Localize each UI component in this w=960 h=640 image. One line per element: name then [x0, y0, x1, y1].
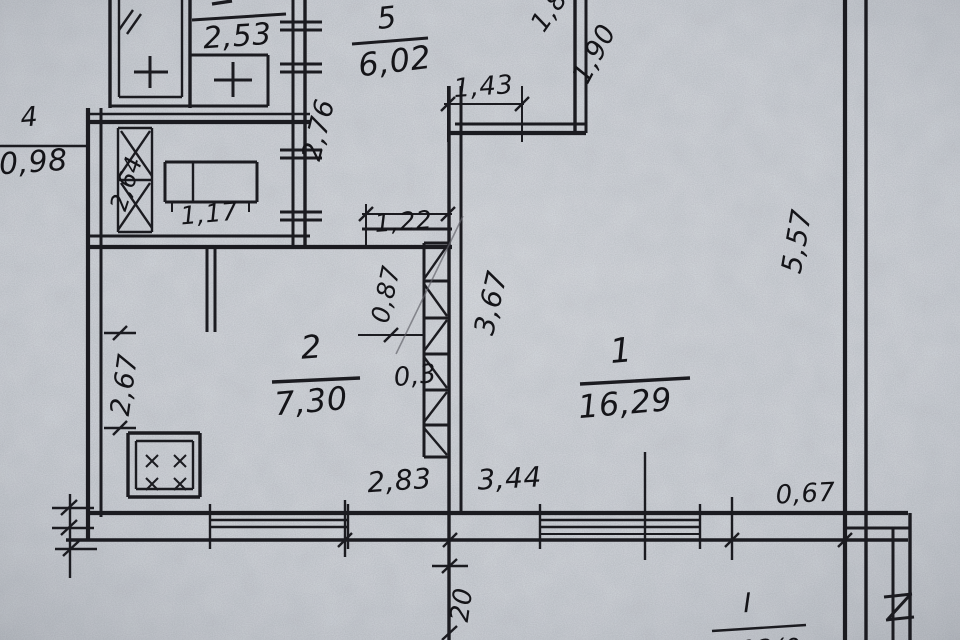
room2-area-label: 7,30 — [273, 379, 349, 423]
dim-067-label: 0,67 — [775, 477, 836, 510]
dim-117-label: 1,17 — [179, 197, 239, 231]
room2-number-label: 2 — [300, 327, 323, 366]
balcony-roman-label: I — [743, 588, 753, 619]
dim-03-label: 0,3 — [392, 359, 438, 393]
dim-344-label: 3,44 — [477, 460, 543, 496]
room5-number-label: 5 — [375, 0, 398, 37]
room1-number-label: 1 — [608, 330, 634, 372]
floor-plan-photo: 2,53 5 6,02 2,76 1,43 1,8 1,90 5,57 4 0,… — [0, 0, 960, 640]
dim-283-label: 2,83 — [366, 462, 432, 499]
room4-area-label: 0,98 — [0, 143, 69, 183]
dim-122-label: 1,22 — [374, 205, 434, 238]
dim-20-label: 20 — [445, 586, 479, 624]
floor-plan-drawing: 2,53 5 6,02 2,76 1,43 1,8 1,90 5,57 4 0,… — [0, 0, 960, 640]
dim-143-label: 1,43 — [453, 70, 515, 104]
room3-area-label: 2,53 — [202, 17, 273, 57]
room4-number-label: 4 — [19, 101, 39, 133]
